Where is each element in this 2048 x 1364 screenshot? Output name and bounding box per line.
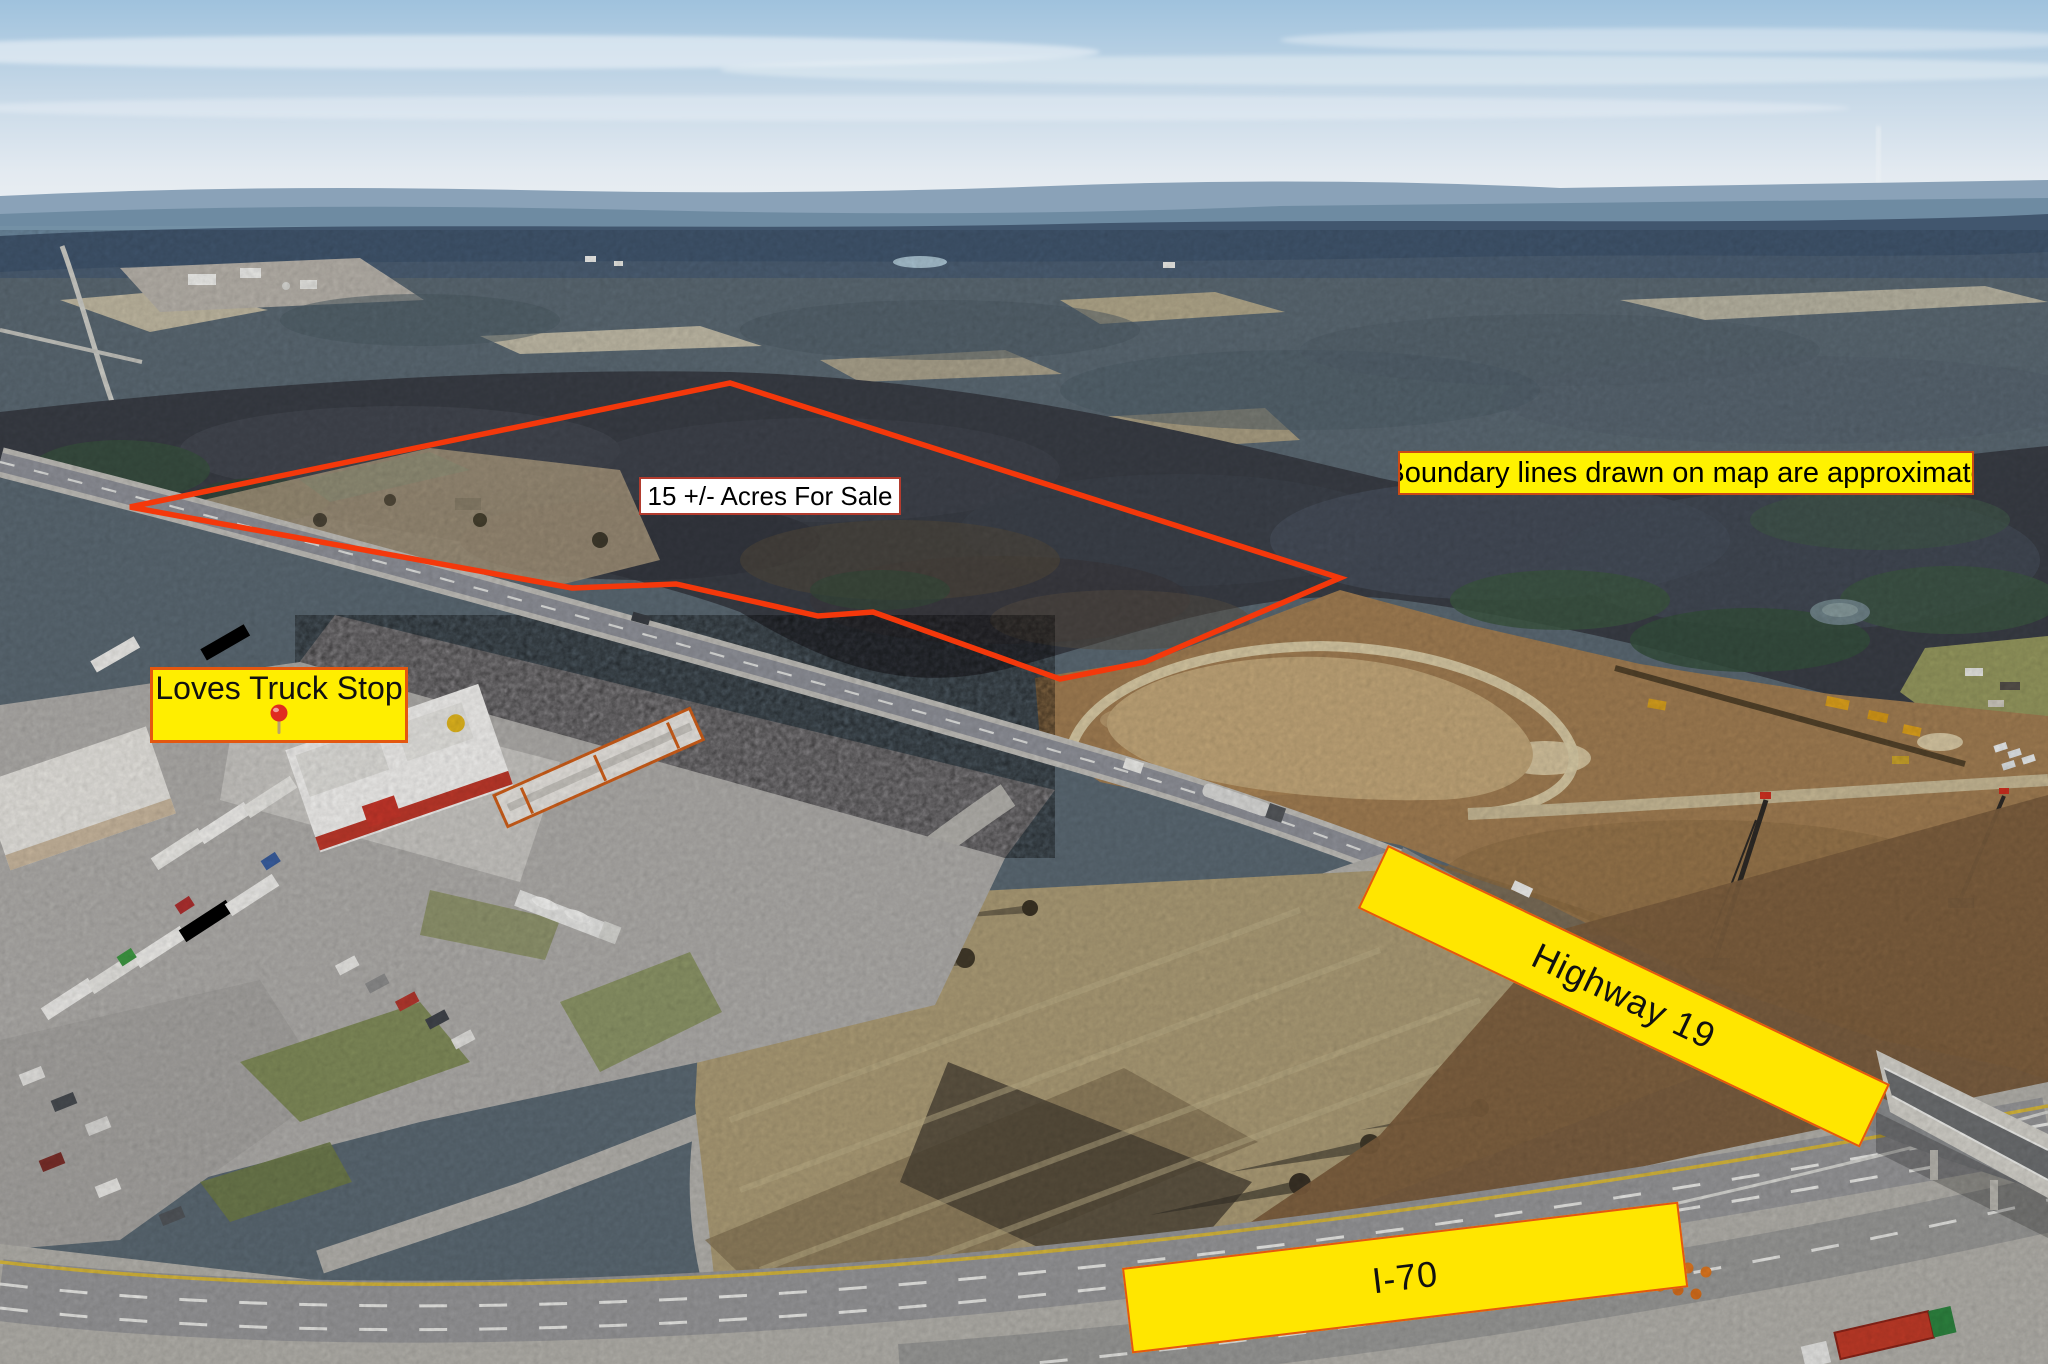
aerial-real-estate-photo: 15 +/- Acres For Sale Boundary lines dra… [0,0,2048,1364]
smoke-plume [1876,126,1881,188]
truck-stop-label-text: Loves Truck Stop [155,670,402,706]
disclaimer-label: Boundary lines drawn on map are approxim… [1398,451,1974,495]
acreage-label-text: 15 +/- Acres For Sale [648,481,893,512]
truck-stop-label: Loves Truck Stop [150,667,408,743]
texture-overlay [0,230,2048,1364]
acreage-label: 15 +/- Acres For Sale [639,477,901,515]
map-pin-icon [268,704,290,738]
disclaimer-label-text: Boundary lines drawn on map are approxim… [1398,457,1974,490]
i70-banner-text: I-70 [1370,1253,1441,1303]
